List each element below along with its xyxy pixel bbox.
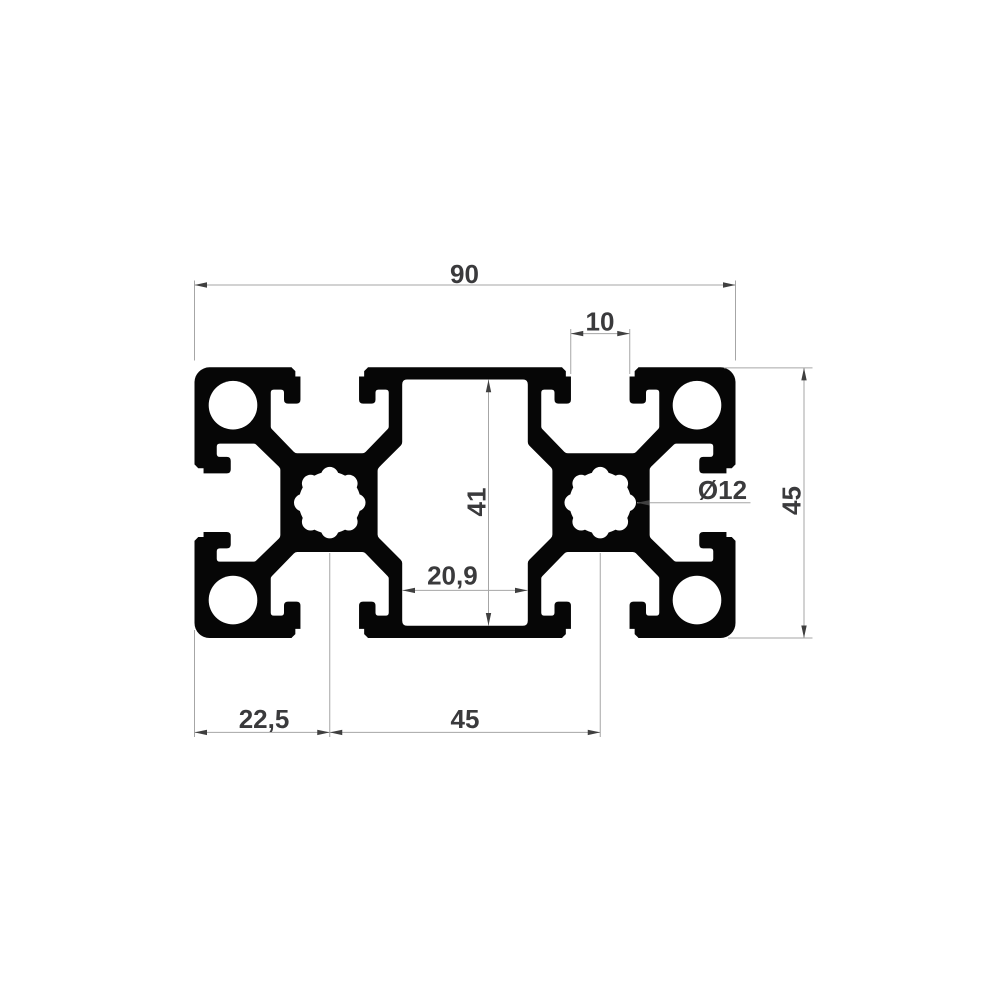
svg-text:Ø12: Ø12 [698,475,747,505]
svg-text:20,9: 20,9 [427,561,478,591]
svg-text:41: 41 [462,488,492,517]
svg-text:45: 45 [451,704,480,734]
svg-text:45: 45 [777,486,807,515]
svg-text:22,5: 22,5 [239,704,290,734]
svg-text:90: 90 [450,259,479,289]
svg-text:10: 10 [586,307,615,337]
